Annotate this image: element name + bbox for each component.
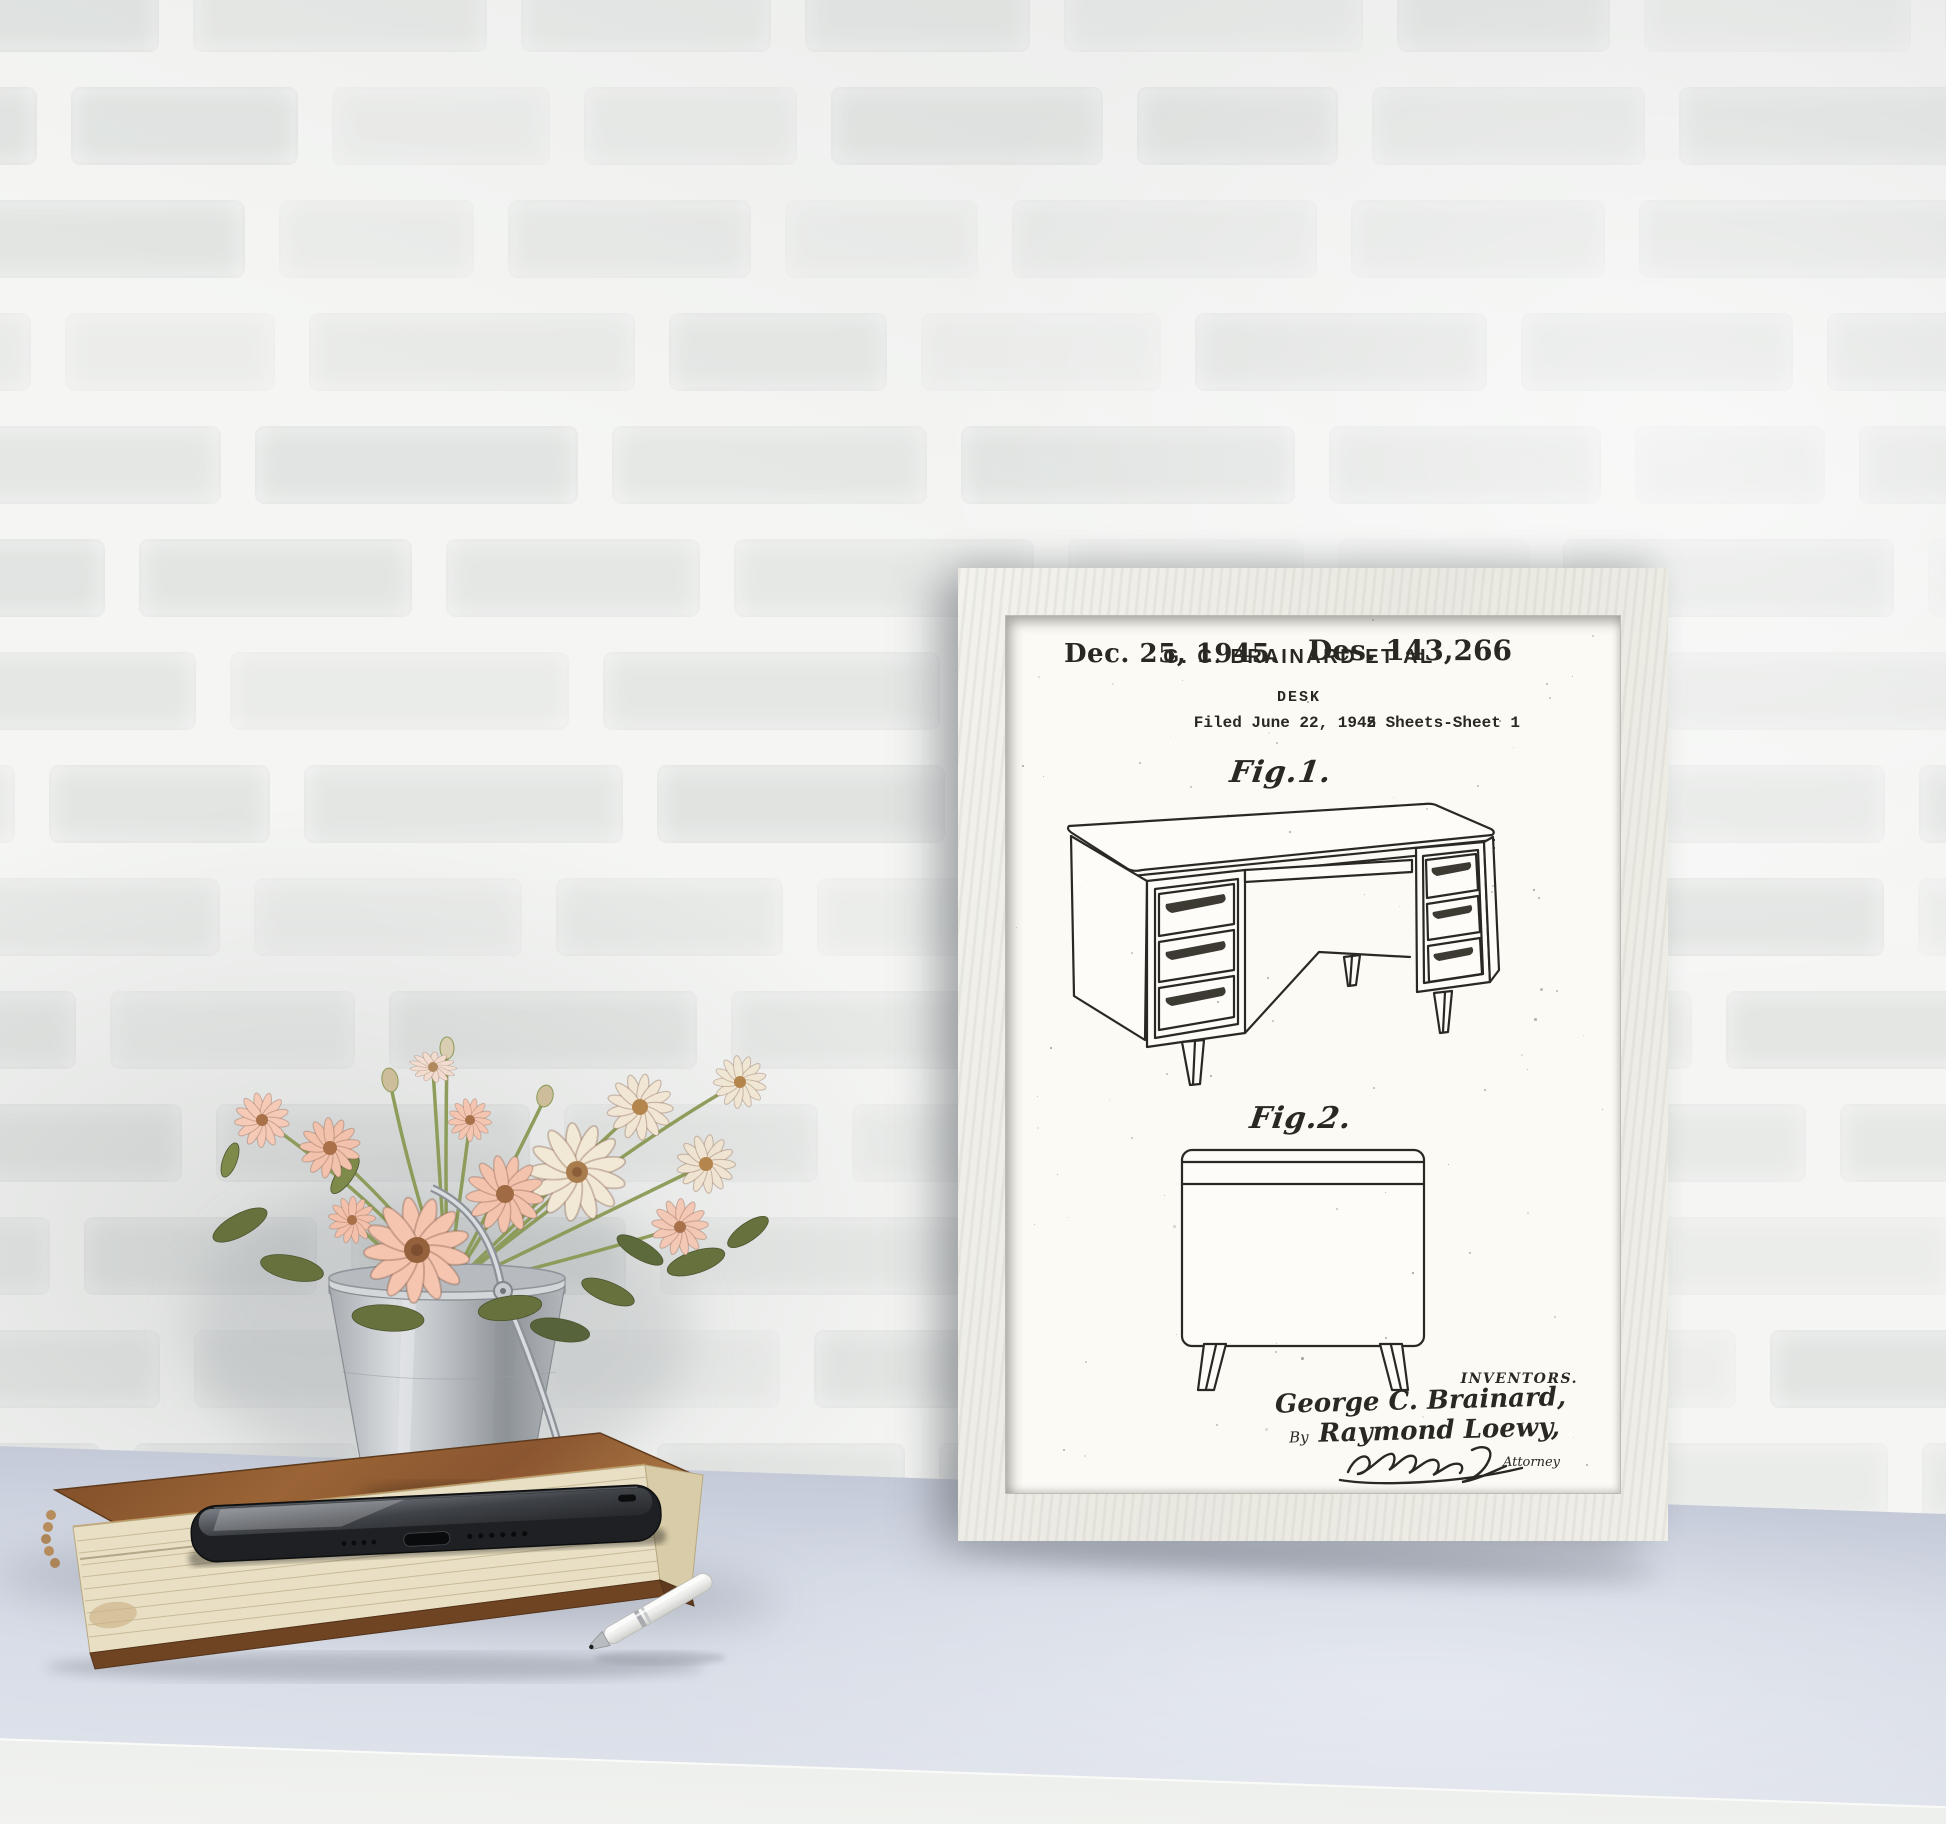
brick bbox=[49, 765, 270, 843]
patent-applicant: G. C. BRAINARD ET AL bbox=[992, 646, 1606, 668]
brick bbox=[0, 878, 220, 956]
brick bbox=[669, 313, 887, 391]
paper-speckle bbox=[1208, 1388, 1210, 1390]
brick bbox=[0, 539, 105, 617]
paper-speckle bbox=[1538, 897, 1540, 899]
paper-speckle bbox=[1572, 676, 1573, 677]
paper-speckle bbox=[1533, 889, 1535, 891]
brick bbox=[1639, 200, 1946, 278]
paper-speckle bbox=[1556, 990, 1558, 992]
brick bbox=[0, 200, 245, 278]
brick bbox=[0, 87, 37, 165]
brick bbox=[1840, 1104, 1946, 1182]
paper-speckle bbox=[1216, 1424, 1218, 1426]
brick bbox=[1666, 652, 1946, 730]
brick bbox=[1922, 1443, 1946, 1521]
brick bbox=[65, 313, 275, 391]
paper-speckle bbox=[1301, 1357, 1304, 1360]
brick bbox=[584, 87, 797, 165]
brick bbox=[1064, 0, 1363, 52]
flower-buds bbox=[380, 1037, 556, 1109]
paper-speckle bbox=[1546, 683, 1548, 685]
brick bbox=[255, 426, 578, 504]
paper-speckle bbox=[1592, 635, 1594, 637]
brick bbox=[1397, 0, 1610, 52]
desk-left-pedestal bbox=[1147, 870, 1245, 1047]
paper-speckle bbox=[1499, 720, 1501, 722]
brick bbox=[521, 0, 771, 52]
brick bbox=[1521, 313, 1793, 391]
paper-speckle bbox=[1586, 1464, 1588, 1466]
paper-speckle bbox=[1267, 977, 1269, 979]
paper-speckle bbox=[1170, 736, 1171, 737]
brick bbox=[556, 878, 783, 956]
paper-speckle bbox=[1554, 1316, 1556, 1318]
room-scene: Dec. 25, 1945. G. C. BRAINARD ET AL Des.… bbox=[0, 0, 1946, 1824]
brick bbox=[254, 878, 522, 956]
paper-speckle bbox=[1139, 762, 1141, 764]
brick bbox=[785, 200, 978, 278]
brick bbox=[1918, 878, 1946, 956]
brick bbox=[71, 87, 298, 165]
paper-speckle bbox=[1085, 1361, 1087, 1363]
paper-speckle bbox=[1522, 1422, 1524, 1424]
paper-speckle bbox=[1067, 1217, 1068, 1218]
desk-side-right-leg bbox=[1380, 1344, 1408, 1390]
brick bbox=[1770, 1330, 1946, 1408]
paper-speckle bbox=[1131, 1031, 1133, 1033]
brick bbox=[1928, 539, 1946, 617]
paper-speckle bbox=[1276, 742, 1278, 744]
brick bbox=[0, 1217, 50, 1295]
patent-sheet-count: 2 Sheets-Sheet 1 bbox=[1366, 715, 1520, 733]
pen-shadow bbox=[594, 1651, 726, 1665]
desk-side-body bbox=[1182, 1150, 1424, 1346]
picture-frame: Dec. 25, 1945. G. C. BRAINARD ET AL Des.… bbox=[958, 568, 1668, 1541]
paper-speckle bbox=[1491, 891, 1493, 893]
brick bbox=[446, 539, 700, 617]
brick bbox=[1195, 313, 1487, 391]
paper-speckle bbox=[1373, 1087, 1375, 1089]
brick bbox=[1644, 0, 1911, 52]
brick bbox=[921, 313, 1161, 391]
brick bbox=[0, 991, 76, 1069]
paper-speckle bbox=[1166, 1073, 1168, 1075]
paper-speckle bbox=[1205, 881, 1207, 883]
brick bbox=[961, 426, 1295, 504]
paper-speckle bbox=[1513, 747, 1514, 748]
paper-speckle bbox=[1492, 885, 1494, 887]
brick bbox=[831, 87, 1103, 165]
brick bbox=[0, 426, 221, 504]
book-stack bbox=[15, 1415, 735, 1685]
paper-speckle bbox=[1422, 1416, 1424, 1418]
paper-speckle bbox=[1275, 1351, 1277, 1353]
paper-speckle bbox=[1037, 1096, 1038, 1097]
paper-speckle bbox=[1583, 1035, 1584, 1036]
brick bbox=[0, 652, 196, 730]
brick bbox=[1726, 991, 1946, 1069]
paper-speckle bbox=[1540, 988, 1543, 991]
paper-speckle bbox=[1050, 1047, 1052, 1049]
paper-speckle bbox=[1131, 1137, 1133, 1139]
brick bbox=[1137, 87, 1338, 165]
phone-port bbox=[404, 1531, 451, 1546]
brick bbox=[1329, 426, 1601, 504]
brick bbox=[1919, 765, 1946, 843]
by-label: By bbox=[1289, 1430, 1309, 1446]
brick bbox=[1827, 313, 1946, 391]
paper-speckle bbox=[1182, 680, 1183, 681]
poster-paper: Dec. 25, 1945. G. C. BRAINARD ET AL Des.… bbox=[1005, 615, 1621, 1494]
attorney-label: Attorney bbox=[1503, 1456, 1560, 1469]
paper-speckle bbox=[1037, 1127, 1039, 1129]
brick bbox=[1662, 1217, 1946, 1295]
patent-title: DESK bbox=[992, 690, 1606, 707]
patent-number: Des. 143,266 bbox=[1308, 636, 1512, 667]
paper-speckle bbox=[1043, 776, 1044, 777]
paper-speckle bbox=[1034, 1224, 1035, 1225]
paper-speckle bbox=[1038, 676, 1040, 678]
paper-speckle bbox=[1057, 1174, 1058, 1175]
brick bbox=[332, 87, 550, 165]
paper-speckle bbox=[1534, 1018, 1537, 1021]
brick bbox=[139, 539, 412, 617]
paper-speckle bbox=[1112, 683, 1114, 685]
paper-speckle bbox=[1307, 701, 1309, 703]
brick bbox=[193, 0, 487, 52]
paper-speckle bbox=[1265, 1428, 1268, 1431]
paper-speckle bbox=[1268, 732, 1270, 734]
desk-side-drawing bbox=[1170, 1136, 1440, 1398]
paper-speckle bbox=[1448, 1164, 1449, 1165]
paper-speckle bbox=[1228, 814, 1229, 815]
brick bbox=[1635, 426, 1825, 504]
paper-speckle bbox=[1022, 765, 1024, 767]
brick bbox=[1372, 87, 1645, 165]
brick bbox=[0, 765, 15, 843]
paper-speckle bbox=[1484, 1089, 1486, 1091]
brick bbox=[309, 313, 635, 391]
brick bbox=[279, 200, 474, 278]
brick bbox=[805, 0, 1030, 52]
brick bbox=[612, 426, 927, 504]
brick bbox=[508, 200, 751, 278]
paper-speckle bbox=[1412, 1272, 1414, 1274]
paper-speckle bbox=[1063, 1449, 1065, 1451]
paper-speckle bbox=[1527, 1212, 1529, 1214]
brick bbox=[0, 0, 159, 52]
paper-speckle bbox=[1573, 1437, 1574, 1438]
brick bbox=[1012, 200, 1317, 278]
paper-speckle bbox=[1272, 1020, 1274, 1022]
brick bbox=[1679, 87, 1946, 165]
paper-speckle bbox=[1469, 1252, 1471, 1254]
brick bbox=[304, 765, 623, 843]
paper-speckle bbox=[1164, 1195, 1165, 1196]
paper-speckle bbox=[1372, 619, 1374, 621]
paper-speckle bbox=[1016, 927, 1017, 928]
paper-speckle bbox=[1217, 1001, 1219, 1003]
paper-speckle bbox=[1173, 1225, 1176, 1228]
paper-speckle bbox=[1602, 1109, 1603, 1110]
paper-speckle bbox=[1210, 1075, 1212, 1077]
phone-side-button bbox=[618, 1494, 636, 1502]
brick bbox=[0, 1330, 160, 1408]
brick bbox=[657, 765, 945, 843]
brick bbox=[0, 313, 31, 391]
brick bbox=[230, 652, 569, 730]
paper-speckle bbox=[1084, 1455, 1086, 1457]
brick bbox=[1859, 426, 1946, 504]
brick bbox=[603, 652, 940, 730]
brick bbox=[1351, 200, 1605, 278]
brick bbox=[1661, 765, 1885, 843]
fig2-label: Fig.2. bbox=[1248, 1104, 1354, 1134]
